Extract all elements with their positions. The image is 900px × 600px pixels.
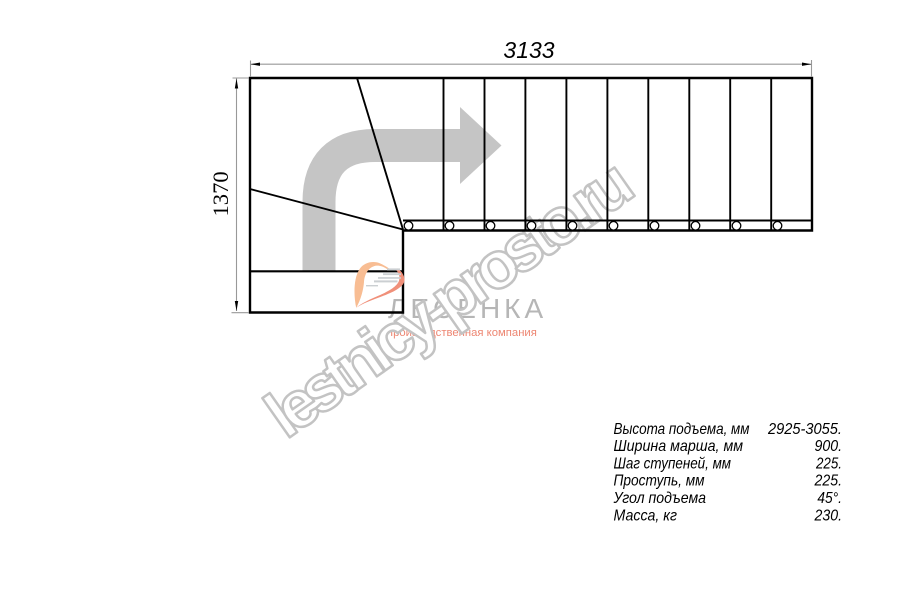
svg-text:Высота подъема, мм: Высота подъема, мм (614, 421, 750, 438)
svg-text:Угол подъема: Угол подъема (613, 490, 706, 507)
svg-text:225.: 225. (815, 455, 842, 472)
svg-text:3133: 3133 (503, 37, 554, 63)
svg-text:900.: 900. (815, 438, 843, 455)
svg-text:Шаг ступеней, мм: Шаг ступеней, мм (614, 455, 732, 472)
svg-text:230.: 230. (814, 507, 842, 524)
svg-text:45°.: 45°. (817, 490, 842, 507)
svg-text:2925-3055.: 2925-3055. (767, 421, 842, 438)
svg-text:1370: 1370 (208, 171, 233, 216)
svg-text:Проступь, мм: Проступь, мм (614, 473, 705, 490)
svg-text:Масса, кг: Масса, кг (614, 507, 678, 524)
svg-text:Ширина марша, мм: Ширина марша, мм (614, 438, 744, 455)
svg-text:225.: 225. (814, 473, 842, 490)
